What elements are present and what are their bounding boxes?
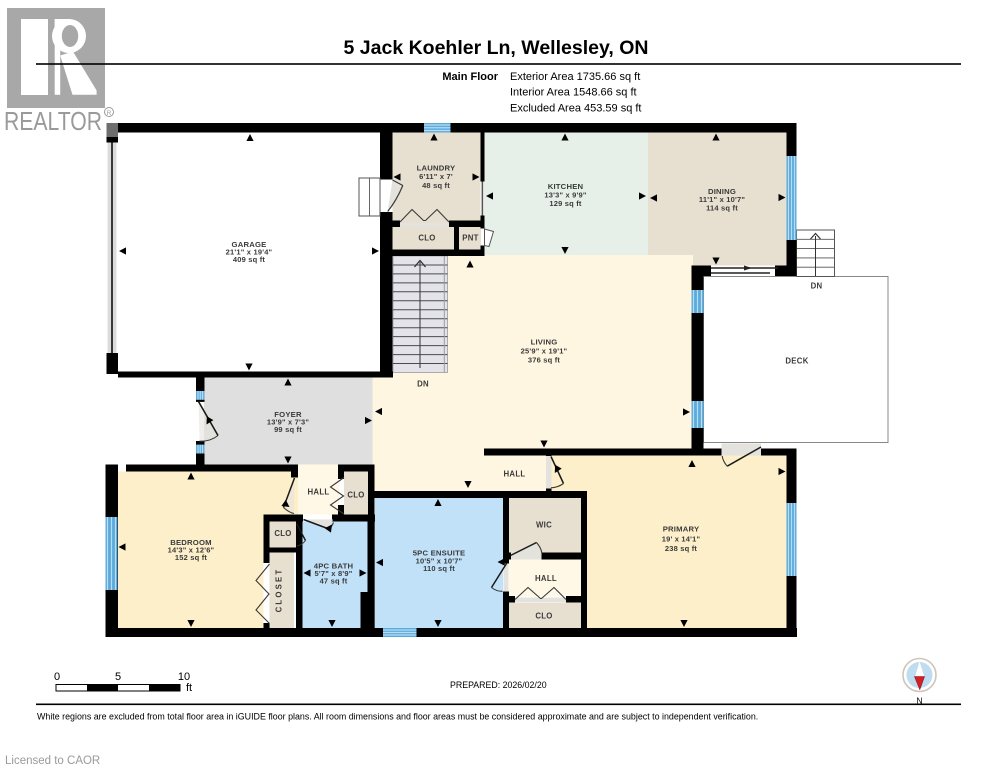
svg-text:48 sq ft: 48 sq ft xyxy=(422,181,450,190)
svg-text:LAUNDRY: LAUNDRY xyxy=(417,164,456,173)
svg-text:110 sq ft: 110 sq ft xyxy=(423,564,455,573)
svg-text:5: 5 xyxy=(115,671,121,683)
svg-text:47 sq ft: 47 sq ft xyxy=(320,577,348,586)
svg-text:R: R xyxy=(107,110,112,117)
svg-text:HALL: HALL xyxy=(535,574,557,583)
svg-text:13'3" x 9'9": 13'3" x 9'9" xyxy=(544,191,587,200)
svg-text:25'9" x 19'1": 25'9" x 19'1" xyxy=(521,346,568,355)
svg-text:238 sq ft: 238 sq ft xyxy=(665,544,698,553)
svg-text:PRIMARY: PRIMARY xyxy=(663,525,700,534)
svg-text:WIC: WIC xyxy=(536,521,552,530)
svg-text:5 Jack Koehler Ln, Wellesley,: 5 Jack Koehler Ln, Wellesley, ON xyxy=(344,37,649,59)
svg-text:CLO: CLO xyxy=(418,234,435,243)
svg-text:CLO: CLO xyxy=(274,529,291,538)
svg-text:PNT: PNT xyxy=(462,234,479,243)
svg-text:LIVING: LIVING xyxy=(531,338,558,347)
svg-text:Licensed to CAOR: Licensed to CAOR xyxy=(5,755,100,767)
svg-text:0: 0 xyxy=(54,671,60,683)
svg-text:CLO: CLO xyxy=(535,612,552,621)
svg-text:376 sq ft: 376 sq ft xyxy=(528,355,561,364)
svg-text:99 sq ft: 99 sq ft xyxy=(274,425,302,434)
svg-text:Excluded Area 453.59 sq ft: Excluded Area 453.59 sq ft xyxy=(510,102,641,114)
svg-text:Exterior Area 1735.66 sq ft: Exterior Area 1735.66 sq ft xyxy=(510,71,640,83)
svg-text:CLO: CLO xyxy=(347,491,364,500)
svg-text:HALL: HALL xyxy=(504,470,526,479)
svg-text:Interior Area 1548.66 sq ft: Interior Area 1548.66 sq ft xyxy=(510,87,637,99)
svg-text:DECK: DECK xyxy=(785,357,808,366)
svg-text:DN: DN xyxy=(811,282,823,291)
svg-text:DN: DN xyxy=(417,380,429,389)
svg-text:Main Floor: Main Floor xyxy=(442,71,498,83)
svg-text:CLOSET: CLOSET xyxy=(275,568,284,613)
svg-text:114 sq ft: 114 sq ft xyxy=(706,203,738,212)
svg-text:152 sq ft: 152 sq ft xyxy=(175,553,208,562)
svg-text:KITCHEN: KITCHEN xyxy=(548,182,584,191)
svg-text:ft: ft xyxy=(186,682,192,694)
svg-text:HALL: HALL xyxy=(308,488,330,497)
svg-text:White regions are excluded fro: White regions are excluded from total fl… xyxy=(37,712,758,722)
svg-text:6'11" x 7': 6'11" x 7' xyxy=(419,172,453,181)
svg-text:19' x 14'1": 19' x 14'1" xyxy=(662,534,701,543)
svg-text:409 sq ft: 409 sq ft xyxy=(233,255,266,264)
svg-text:129 sq ft: 129 sq ft xyxy=(549,199,582,208)
svg-text:REALTOR: REALTOR xyxy=(4,106,102,136)
svg-text:PREPARED: 2026/02/20: PREPARED: 2026/02/20 xyxy=(450,680,547,690)
